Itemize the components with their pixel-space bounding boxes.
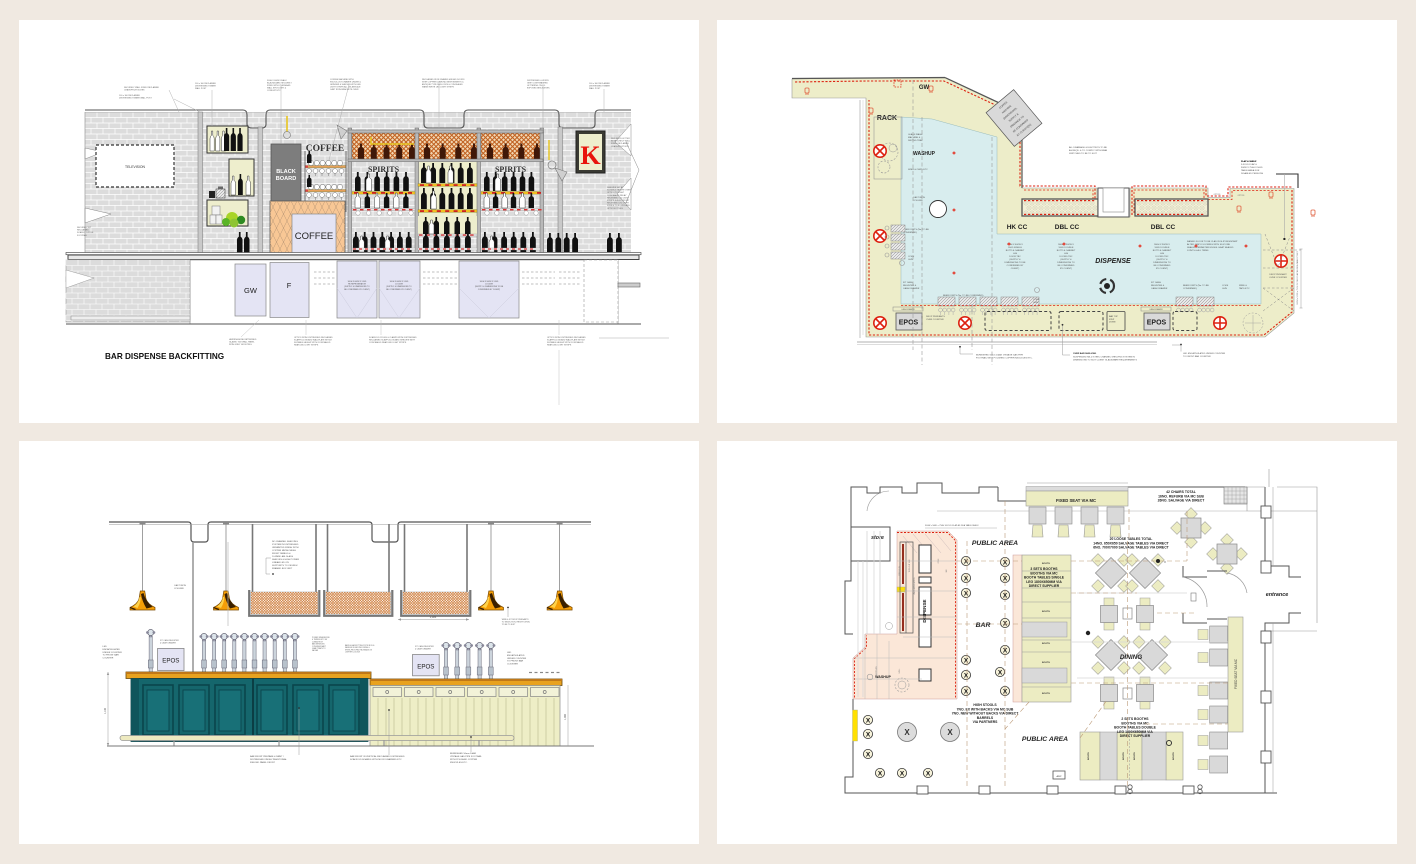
svg-text:FLAP & SHELF: FLAP & SHELF (1241, 160, 1257, 163)
svg-text:LHS: LHS (1064, 253, 1069, 255)
svg-text:BOTTLE CABINET: BOTTLE CABINET (1057, 249, 1076, 252)
svg-text:1,080: 1,080 (564, 713, 567, 720)
svg-text:BE CONFIRMED BY CLIENT): BE CONFIRMED BY CLIENT) (344, 289, 370, 291)
svg-text:SHELVES SET AT: SHELVES SET AT (607, 186, 624, 189)
svg-text:VINTAGE GAS PIPE FOOTRAIL: VINTAGE GAS PIPE FOOTRAIL (450, 755, 483, 758)
svg-text:LHS: LHS (1013, 253, 1018, 255)
svg-text:SUITABLE HEIGHT OVER: SUITABLE HEIGHT OVER (607, 189, 631, 192)
svg-text:GLASS WASH: GLASS WASH (908, 133, 923, 136)
svg-text:COKE: COKE (908, 256, 915, 258)
svg-text:BOARD: BOARD (276, 176, 297, 182)
svg-text:OPTICS: OPTICS (1214, 194, 1221, 196)
svg-text:SYSTEM IN DISTRESSED: SYSTEM IN DISTRESSED (272, 544, 299, 546)
svg-text:COUNTER: COUNTER (507, 664, 518, 666)
svg-text:VIA PARTNERS: VIA PARTNERS (973, 720, 999, 724)
svg-text:GRILL: GRILL (899, 669, 901, 674)
svg-text:GUN: GUN (1033, 302, 1038, 304)
svg-text:BOOTH: BOOTH (1042, 563, 1050, 565)
svg-text:DISTRESSED FINISH TRADITIONAL: DISTRESSED FINISH TRADITIONAL (250, 758, 288, 761)
svg-text:LED: LED (103, 646, 108, 648)
svg-text:RACK: RACK (877, 115, 897, 122)
svg-text:550D DOUBLE: 550D DOUBLE (1155, 247, 1170, 249)
svg-text:OVER COUNTER: OVER COUNTER (926, 319, 944, 321)
svg-text:FIXED SEAT VIA MC: FIXED SEAT VIA MC (1234, 658, 1238, 689)
svg-text:BE CONFIRMED: BE CONFIRMED (1058, 265, 1075, 267)
svg-text:EXPOSED BRICKWORK: EXPOSED BRICKWORK (527, 88, 550, 90)
svg-text:RECLAIMED: RECLAIMED (77, 229, 89, 232)
svg-text:BE CONFIRMED BY CLIENT): BE CONFIRMED BY CLIENT) (386, 289, 412, 291)
svg-text:BAR FRONT PREPARE & PAINT /: BAR FRONT PREPARE & PAINT / (250, 755, 284, 758)
svg-text:CONDUIT ETC: CONDUIT ETC (267, 90, 281, 92)
svg-text:STRIPS TO ILLUMINATE: STRIPS TO ILLUMINATE (607, 204, 630, 207)
svg-text:FRONT PANELS &: FRONT PANELS & (272, 552, 291, 555)
svg-text:CAST IRON: CAST IRON (174, 584, 186, 587)
svg-text:FRAMED BOX UNIT: FRAMED BOX UNIT (272, 567, 293, 570)
svg-text:DOOR TBC: DOOR TBC (1009, 256, 1021, 258)
svg-text:DINING: DINING (1120, 654, 1142, 661)
svg-text:TABLE AREA FOR: TABLE AREA FOR (1241, 169, 1260, 172)
svg-text:X: X (904, 728, 910, 737)
svg-text:(SUPPLY &: (SUPPLY & (1009, 259, 1021, 261)
svg-text:X: X (926, 771, 931, 778)
svg-text:IN SECURELY WALL: IN SECURELY WALL (611, 140, 631, 143)
svg-text:REGISTER &: REGISTER & (1151, 285, 1165, 287)
svg-text:SUPPORTS TO CEILING/: SUPPORTS TO CEILING/ (272, 565, 298, 567)
svg-text:TELEVISION: TELEVISION (125, 165, 146, 169)
svg-text:X: X (998, 670, 1003, 677)
svg-text:TO BE TO SUIT: TO BE TO SUIT (502, 624, 516, 626)
svg-text:BAR: BAR (976, 622, 991, 629)
svg-text:3-FOLD FLAP &: 3-FOLD FLAP & (1241, 163, 1257, 166)
svg-text:X: X (878, 771, 883, 778)
svg-text:CAST IRON: CAST IRON (913, 196, 925, 199)
svg-text:DIRECT SUPPLIER: DIRECT SUPPLIER (1029, 584, 1060, 588)
svg-text:X: X (964, 559, 969, 566)
svg-text:WASHUP: WASHUP (913, 151, 936, 157)
svg-text:NO CHANNEL SHELVING: NO CHANNEL SHELVING (272, 540, 298, 543)
svg-text:BOOTH: BOOTH (1134, 752, 1136, 760)
svg-text:OPTIC BOTTLES: OPTIC BOTTLES (607, 208, 623, 210)
svg-text:BURNISHED 50mm DIAM. VINTAGE G: BURNISHED 50mm DIAM. VINTAGE GAS PIPE (976, 354, 1024, 357)
svg-text:BEER FONTS (No. TO BE: BEER FONTS (No. TO BE (903, 229, 929, 231)
svg-text:FIXED SEAT VIA MC: FIXED SEAT VIA MC (1056, 498, 1096, 503)
svg-text:UNDER COUNTER: UNDER COUNTER (103, 652, 123, 654)
svg-text:WALL POST: WALL POST (195, 87, 207, 90)
svg-text:LED ENCAPSULATED UNDER COUNTER: LED ENCAPSULATED UNDER COUNTER (1183, 352, 1226, 355)
svg-text:GW: GW (919, 85, 930, 91)
svg-text:1,100: 1,100 (104, 707, 107, 714)
svg-text:LHS: LHS (1160, 253, 1165, 255)
svg-text:CAST IRON BRACKETS OVER: CAST IRON BRACKETS OVER (330, 88, 359, 91)
svg-text:BURNISHED 50mm DIAM.: BURNISHED 50mm DIAM. (450, 752, 477, 755)
svg-text:JOINTS & ALL TRIMS: JOINTS & ALL TRIMS (1187, 249, 1209, 252)
svg-text:CASH DRAWER: CASH DRAWER (903, 287, 920, 290)
svg-text:DRYING TRAY: DRYING TRAY (908, 139, 923, 142)
svg-text:BEER FONTS (No. TO BE: BEER FONTS (No. TO BE (1183, 285, 1209, 287)
svg-text:CONFIRMED BY: CONFIRMED BY (1007, 265, 1024, 267)
svg-text:BOOTH: BOOTH (1042, 693, 1050, 695)
svg-text:OPTICS: OPTICS (1238, 195, 1245, 197)
svg-text:FIELDED PANEL FRONT: FIELDED PANEL FRONT (250, 761, 276, 764)
svg-text:PUBLIC AREA: PUBLIC AREA (972, 540, 1018, 547)
svg-text:DISPENSE: DISPENSE (1095, 258, 1131, 265)
svg-text:TO FRONT BAR: TO FRONT BAR (507, 660, 524, 663)
svg-text:OVER BAR SHELVING: OVER BAR SHELVING (1073, 352, 1096, 355)
svg-text:DOWN: DOWN (1109, 322, 1116, 324)
svg-text:CONFIRMED): CONFIRMED) (1183, 288, 1197, 290)
svg-text:BLACK: BLACK (276, 169, 296, 175)
svg-text:PUBLIC AREA: PUBLIC AREA (1022, 736, 1068, 743)
svg-text:BOOTH: BOOTH (1042, 662, 1050, 664)
svg-text:900H X 900W X: 900H X 900W X (1154, 244, 1170, 246)
svg-text:entrance: entrance (1266, 592, 1288, 598)
svg-text:REAR LED LIGHT STRIPS: REAR LED LIGHT STRIPS (294, 344, 319, 347)
svg-text:REAR LED LIGHT STRIPS: REAR LED LIGHT STRIPS (547, 344, 572, 347)
svg-text:ALTRO GREY FLOORING WITH SILIC: ALTRO GREY FLOORING WITH SILICONE (1187, 243, 1230, 246)
svg-text:DIRECT SUPPLIER: DIRECT SUPPLIER (1120, 734, 1151, 738)
svg-text:550D DOUBLE: 550D DOUBLE (1059, 247, 1074, 249)
svg-text:WITH GREY GROUTING: WITH GREY GROUTING (229, 344, 252, 346)
svg-text:AWP: AWP (1057, 775, 1062, 778)
svg-text:(SUPPLY &: (SUPPLY & (1060, 259, 1072, 261)
svg-text:UNDER COUNTER: UNDER COUNTER (507, 658, 527, 660)
svg-text:CRATE/FRUIT BOX: CRATE/FRUIT BOX (611, 145, 629, 148)
svg-text:DIMENSIONS TO BE: DIMENSIONS TO BE (1005, 262, 1026, 264)
svg-text:WITH POLISHED COPPER: WITH POLISHED COPPER (450, 759, 478, 761)
svg-text:COUNTER: COUNTER (103, 658, 114, 660)
svg-text:BY CLIENT): BY CLIENT) (1156, 268, 1168, 270)
svg-text:X: X (1003, 689, 1008, 696)
svg-text:BE CONFIRMED: BE CONFIRMED (1154, 265, 1171, 267)
svg-text:O: O (1164, 561, 1166, 564)
svg-text:900W X 750H X 500D: 900W X 750H X 500D (1241, 167, 1263, 169)
svg-text:OVER COUNTER: OVER COUNTER (1269, 277, 1287, 279)
svg-text:CASH DRAWER: CASH DRAWER (1149, 308, 1163, 311)
svg-text:UNPAINTED FINISH WITH: UNPAINTED FINISH WITH (272, 546, 299, 549)
svg-text:X: X (964, 576, 969, 583)
svg-text:& CASH DRAWER: & CASH DRAWER (160, 642, 177, 645)
svg-text:GUN: GUN (908, 259, 913, 261)
svg-text:TURN-OUT SUB: TURN-OUT SUB (909, 559, 911, 573)
svg-text:AS REQD. & TO COMPLY WITH BIIA: AS REQD. & TO COMPLY WITH BIIAB (1069, 149, 1108, 152)
svg-text:DIMENSIONS TO: DIMENSIONS TO (1057, 262, 1075, 264)
svg-text:SUSPENDED MILD STEEL CHANNEL S: SUSPENDED MILD STEEL CHANNEL SHELVING SY… (1073, 356, 1135, 359)
svg-text:DIMENSIONS TO: DIMENSIONS TO (1153, 262, 1171, 264)
svg-text:COFFEE: COFFEE (306, 144, 345, 154)
svg-text:DISABLED PERSONS: DISABLED PERSONS (1241, 172, 1264, 175)
svg-text:SPIRITS: SPIRITS (368, 165, 400, 174)
svg-text:X: X (964, 658, 969, 665)
svg-text:STRIPS & ALSO FRONT: STRIPS & ALSO FRONT (607, 199, 630, 202)
svg-text:MACHINE &: MACHINE & (908, 136, 921, 139)
svg-text:10-8MM LAM GLASS: 10-8MM LAM GLASS (272, 555, 294, 558)
svg-text:DOORS TBC: DOORS TBC (1060, 256, 1073, 258)
svg-text:WINE &: WINE & (1239, 285, 1247, 287)
svg-text:DROP PENDANTS: DROP PENDANTS (926, 315, 945, 318)
svg-text:CONFIRMED BY CLIENT): CONFIRMED BY CLIENT) (478, 289, 501, 291)
svg-text:BOTTLE CABINET: BOTTLE CABINET (1153, 249, 1172, 252)
svg-text:CASH DRAWER: CASH DRAWER (1151, 287, 1168, 290)
svg-text:X: X (1003, 593, 1008, 600)
svg-text:CONCEALED RELAY: CONCEALED RELAY (607, 194, 627, 197)
svg-text:BOOTH: BOOTH (1042, 611, 1050, 613)
svg-text:TO FRONT BAR COUNTER: TO FRONT BAR COUNTER (1183, 355, 1211, 358)
svg-text:LINEAR LED ON: LINEAR LED ON (272, 561, 289, 564)
svg-text:SWITCHES TO BE TO SUIT: SWITCHES TO BE TO SUIT (1069, 153, 1097, 155)
svg-text:CONCEALED REAR LED LIGHT STRIP: CONCEALED REAR LED LIGHT STRIPS (369, 341, 407, 344)
svg-text:BOOTH: BOOTH (1088, 752, 1090, 760)
svg-text:ENCAPSULATED: ENCAPSULATED (103, 648, 121, 651)
svg-text:SCAFFO. 2-POLE: SCAFFO. 2-POLE (77, 231, 94, 234)
svg-text:EPOS: EPOS (1147, 320, 1167, 327)
svg-text:WALL POST: WALL POST (589, 87, 601, 90)
svg-text:store: store (871, 535, 884, 541)
svg-text:X: X (866, 732, 871, 739)
svg-text:DISPENSE: DISPENSE (922, 599, 927, 622)
svg-text:GUN: GUN (1222, 288, 1227, 290)
svg-text:X: X (1003, 576, 1008, 583)
svg-text:DBL CC: DBL CC (1151, 224, 1176, 231)
svg-text:EPOS: EPOS (417, 663, 434, 670)
svg-text:BEER FONTS (No. TO BE CONFIRME: BEER FONTS (No. TO BE CONFIRMED) (943, 295, 984, 297)
svg-text:X: X (900, 771, 905, 778)
svg-text:DIMENSIONS TO SUIT CLIENT GLAS: DIMENSIONS TO SUIT CLIENT GLASSWARE REQU… (1073, 359, 1137, 362)
svg-text:& CASH DRAWER: & CASH DRAWER (415, 648, 432, 651)
svg-text:WASHUP: WASHUP (875, 675, 891, 679)
svg-text:X: X (1003, 560, 1008, 567)
svg-text:COLUMN: COLUMN (174, 588, 184, 590)
svg-text:REGISTER &: REGISTER & (903, 285, 917, 287)
svg-text:EPOS: EPOS (162, 658, 179, 665)
svg-text:X: X (964, 689, 969, 696)
svg-text:BAR DISPENSE BACKFITTING: BAR DISPENSE BACKFITTING (105, 352, 224, 361)
svg-text:EPOS: EPOS (899, 320, 919, 327)
svg-text:BAR FRONT IN VERTICAL RECLAIME: BAR FRONT IN VERTICAL RECLAIMED DISTRESS… (350, 755, 405, 758)
svg-text:X: X (866, 718, 871, 725)
svg-text:CRATE/FRUIT BOXES: CRATE/FRUIT BOXES (124, 89, 145, 92)
svg-text:FIT CASH: FIT CASH (1151, 281, 1161, 284)
svg-text:FACIAS: FACIAS (312, 649, 319, 652)
svg-text:DBL CC: DBL CC (1055, 224, 1080, 231)
svg-text:X: X (866, 752, 871, 759)
svg-text:ENCAPSULATED: ENCAPSULATED (507, 654, 525, 657)
svg-text:SCAFFOLD BOARDS WITH MOCK DRAW: SCAFFOLD BOARDS WITH MOCK DRAWERS ETC (350, 758, 402, 761)
svg-text:6NO. 700X7000 SALVAGE TABLES V: 6NO. 700X7000 SALVAGE TABLES VIA DIRECT (1093, 546, 1169, 550)
svg-text:DISTRESSED TIMBER WALL POST: DISTRESSED TIMBER WALL POST (119, 97, 152, 100)
svg-text:DOORS TBC: DOORS TBC (1156, 256, 1169, 258)
svg-text:BOOTH: BOOTH (1042, 643, 1050, 645)
svg-text:FIXED RECLAIMED: FIXED RECLAIMED (611, 142, 630, 145)
svg-text:HK CC: HK CC (1007, 224, 1028, 231)
svg-text:BOOTH: BOOTH (1123, 752, 1125, 760)
svg-text:COLUMN: COLUMN (913, 200, 923, 202)
svg-text:FIT CASH: FIT CASH (903, 281, 913, 284)
svg-text:GW: GW (244, 286, 258, 295)
svg-text:900H X 900W X: 900H X 900W X (1058, 244, 1074, 246)
svg-text:DROP PENDANT: DROP PENDANT (1269, 273, 1287, 276)
svg-text:K: K (580, 141, 601, 170)
svg-text:STEP: STEP (1109, 319, 1115, 321)
svg-text:BOOTH: BOOTH (1173, 752, 1175, 760)
svg-text:X: X (947, 728, 953, 737)
svg-text:26NO. SALVAGE VIA DIRECT: 26NO. SALVAGE VIA DIRECT (1158, 499, 1206, 503)
svg-text:TO FRONT BAR: TO FRONT BAR (103, 654, 120, 657)
svg-text:900W x 500D x 750H 3-FOLD FLAP: 900W x 500D x 750H 3-FOLD FLAP AS DDA TA… (925, 524, 979, 527)
svg-text:FOOTRAIL: FOOTRAIL (77, 234, 88, 237)
svg-text:900W x 500D x 750H 3-FOLD FLAP: 900W x 500D x 750H 3-FOLD FLAP AS DDA TA… (1296, 251, 1299, 305)
svg-text:RAISED FLOOR TO BE CLAD IN SLI: RAISED FLOOR TO BE CLAD IN SLIP RESISTAN… (1187, 240, 1238, 243)
svg-text:PRED PLUS: PRED PLUS (899, 565, 901, 575)
svg-text:(SUPPLY &: (SUPPLY & (1156, 259, 1168, 261)
svg-text:HK REFRIGERATOR: HK REFRIGERATOR (348, 283, 367, 286)
svg-text:LIGHTER COLOUR: LIGHTER COLOUR (345, 652, 361, 654)
svg-text:COFFEE: COFFEE (295, 231, 334, 242)
svg-text:SEALED PERIMETER EDGES. HEAT S: SEALED PERIMETER EDGES. HEAT SEALED (1187, 246, 1234, 249)
svg-text:UNDG 900MM APROX: UNDG 900MM APROX (913, 576, 916, 594)
svg-text:SHELVES & HIGH POWER: SHELVES & HIGH POWER (272, 559, 299, 561)
svg-text:1,086: 1,086 (430, 615, 437, 619)
svg-text:WARM WHITE LED LIGHT STRIPS: WARM WHITE LED LIGHT STRIPS (422, 86, 455, 89)
svg-text:BY CLIENT): BY CLIENT) (1060, 268, 1072, 270)
svg-text:BAR TOP: BAR TOP (1109, 315, 1118, 318)
svg-text:FOOTRAIL WITH POLISHED COPPER: FOOTRAIL WITH POLISHED COPPER KNUCKLES E… (976, 357, 1033, 360)
svg-text:SINKS & TAPS ETC: SINKS & TAPS ETC (908, 168, 928, 171)
svg-text:X: X (964, 673, 969, 680)
svg-text:TAPS ETC: TAPS ETC (1239, 287, 1250, 290)
svg-text:ALL DRAINAGE & ELECTRICS TO BE: ALL DRAINAGE & ELECTRICS TO BE (1069, 146, 1107, 149)
svg-text:F: F (287, 281, 292, 290)
svg-text:BOTTLE CABINET: BOTTLE CABINET (1006, 249, 1025, 252)
svg-text:LED: LED (507, 652, 512, 654)
svg-text:X: X (964, 591, 969, 598)
svg-text:COKE: COKE (1033, 299, 1040, 301)
svg-text:900: 900 (946, 570, 948, 573)
svg-text:CLIENT): CLIENT) (1011, 268, 1020, 270)
svg-text:COPPER METAL MESH: COPPER METAL MESH (272, 549, 296, 552)
svg-text:KNUCKLES ETC.: KNUCKLES ETC. (450, 762, 468, 764)
svg-text:COKE: COKE (1222, 285, 1229, 287)
svg-text:X: X (1003, 648, 1008, 655)
svg-text:550D SINGLE: 550D SINGLE (1008, 247, 1022, 249)
